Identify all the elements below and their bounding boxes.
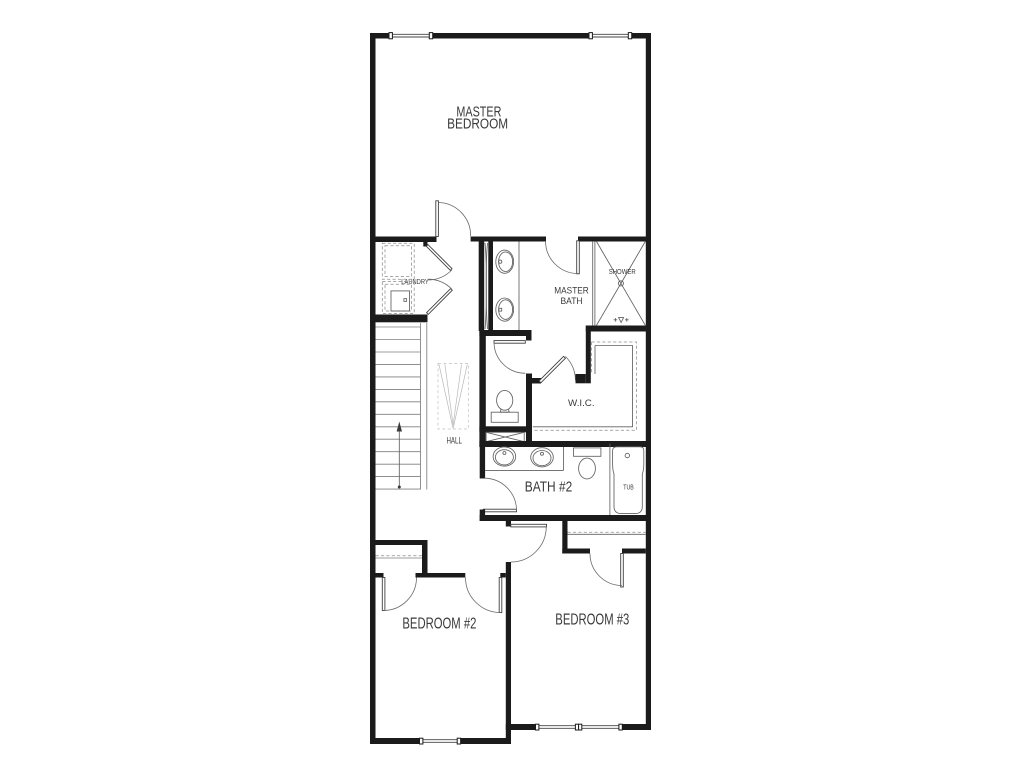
svg-text:HALL: HALL bbox=[446, 436, 462, 446]
svg-text:BEDROOM #3: BEDROOM #3 bbox=[555, 611, 629, 628]
svg-text:SHOWER: SHOWER bbox=[609, 267, 636, 276]
svg-text:BATH: BATH bbox=[561, 296, 583, 307]
svg-text:BEDROOM #2: BEDROOM #2 bbox=[402, 616, 476, 633]
svg-text:BATH #2: BATH #2 bbox=[525, 480, 573, 496]
svg-text:BEDROOM: BEDROOM bbox=[447, 116, 508, 133]
svg-text:TUB: TUB bbox=[623, 484, 634, 491]
svg-text:W.I.C.: W.I.C. bbox=[568, 398, 595, 409]
